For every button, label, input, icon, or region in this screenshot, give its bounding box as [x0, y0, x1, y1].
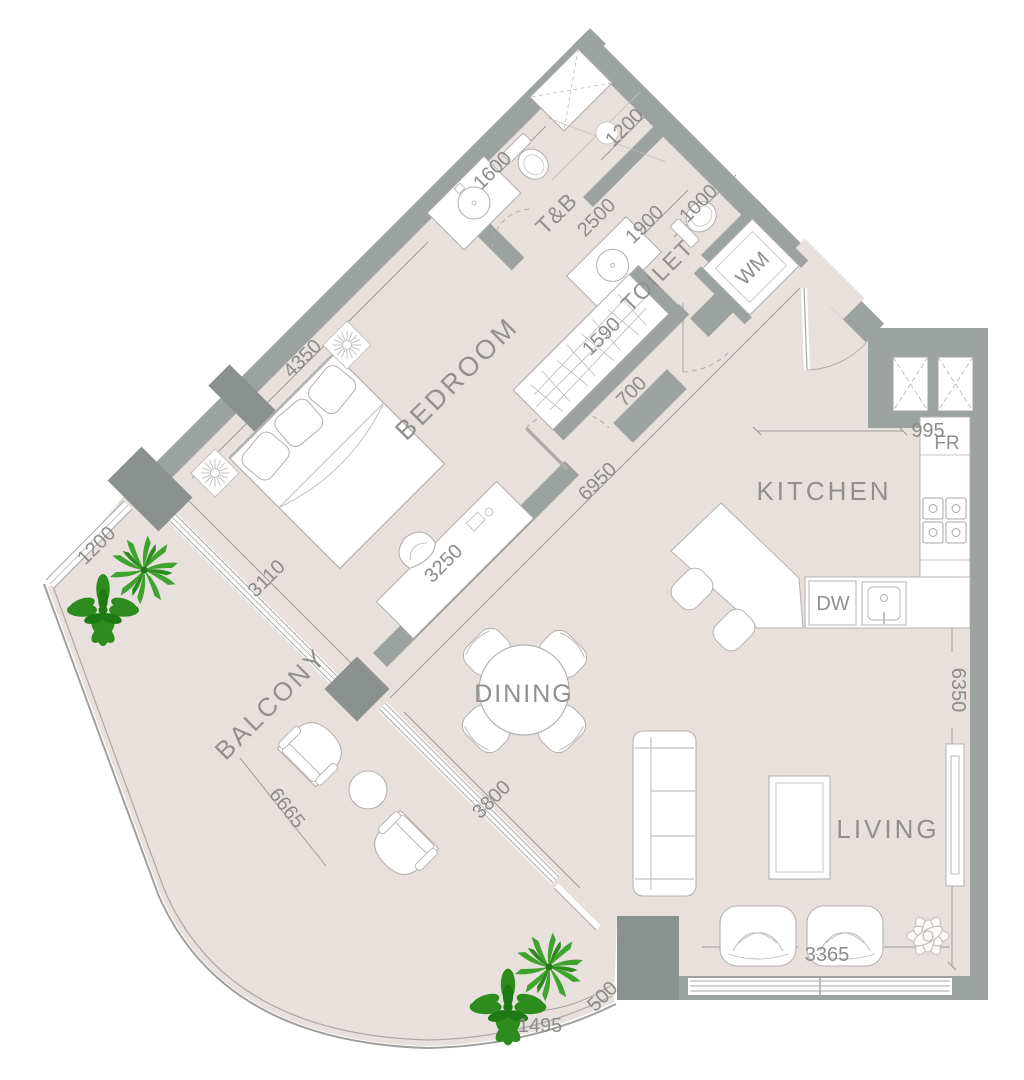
dim-living-width: 3365 [805, 944, 850, 966]
tv-console [946, 744, 964, 886]
dim-kitchen-clearance: 995 [911, 420, 944, 442]
coffee-table [769, 776, 830, 879]
living-window [688, 978, 952, 995]
floor-plan-page: WM [0, 0, 1024, 1080]
armchair [720, 906, 796, 966]
dining-label: DINING [474, 680, 574, 708]
living-label: LIVING [836, 814, 939, 844]
floor-plan: WM [0, 0, 1024, 1080]
balcony-table [349, 771, 387, 809]
dim-balcony-curve: 1495 [518, 1015, 563, 1037]
dishwasher-label: DW [816, 593, 849, 615]
kitchen-sink [862, 582, 906, 625]
kitchen-label: KITCHEN [756, 476, 891, 506]
sofa [633, 731, 696, 896]
column [617, 916, 679, 1000]
dim-kitchen-length: 6350 [947, 668, 969, 713]
